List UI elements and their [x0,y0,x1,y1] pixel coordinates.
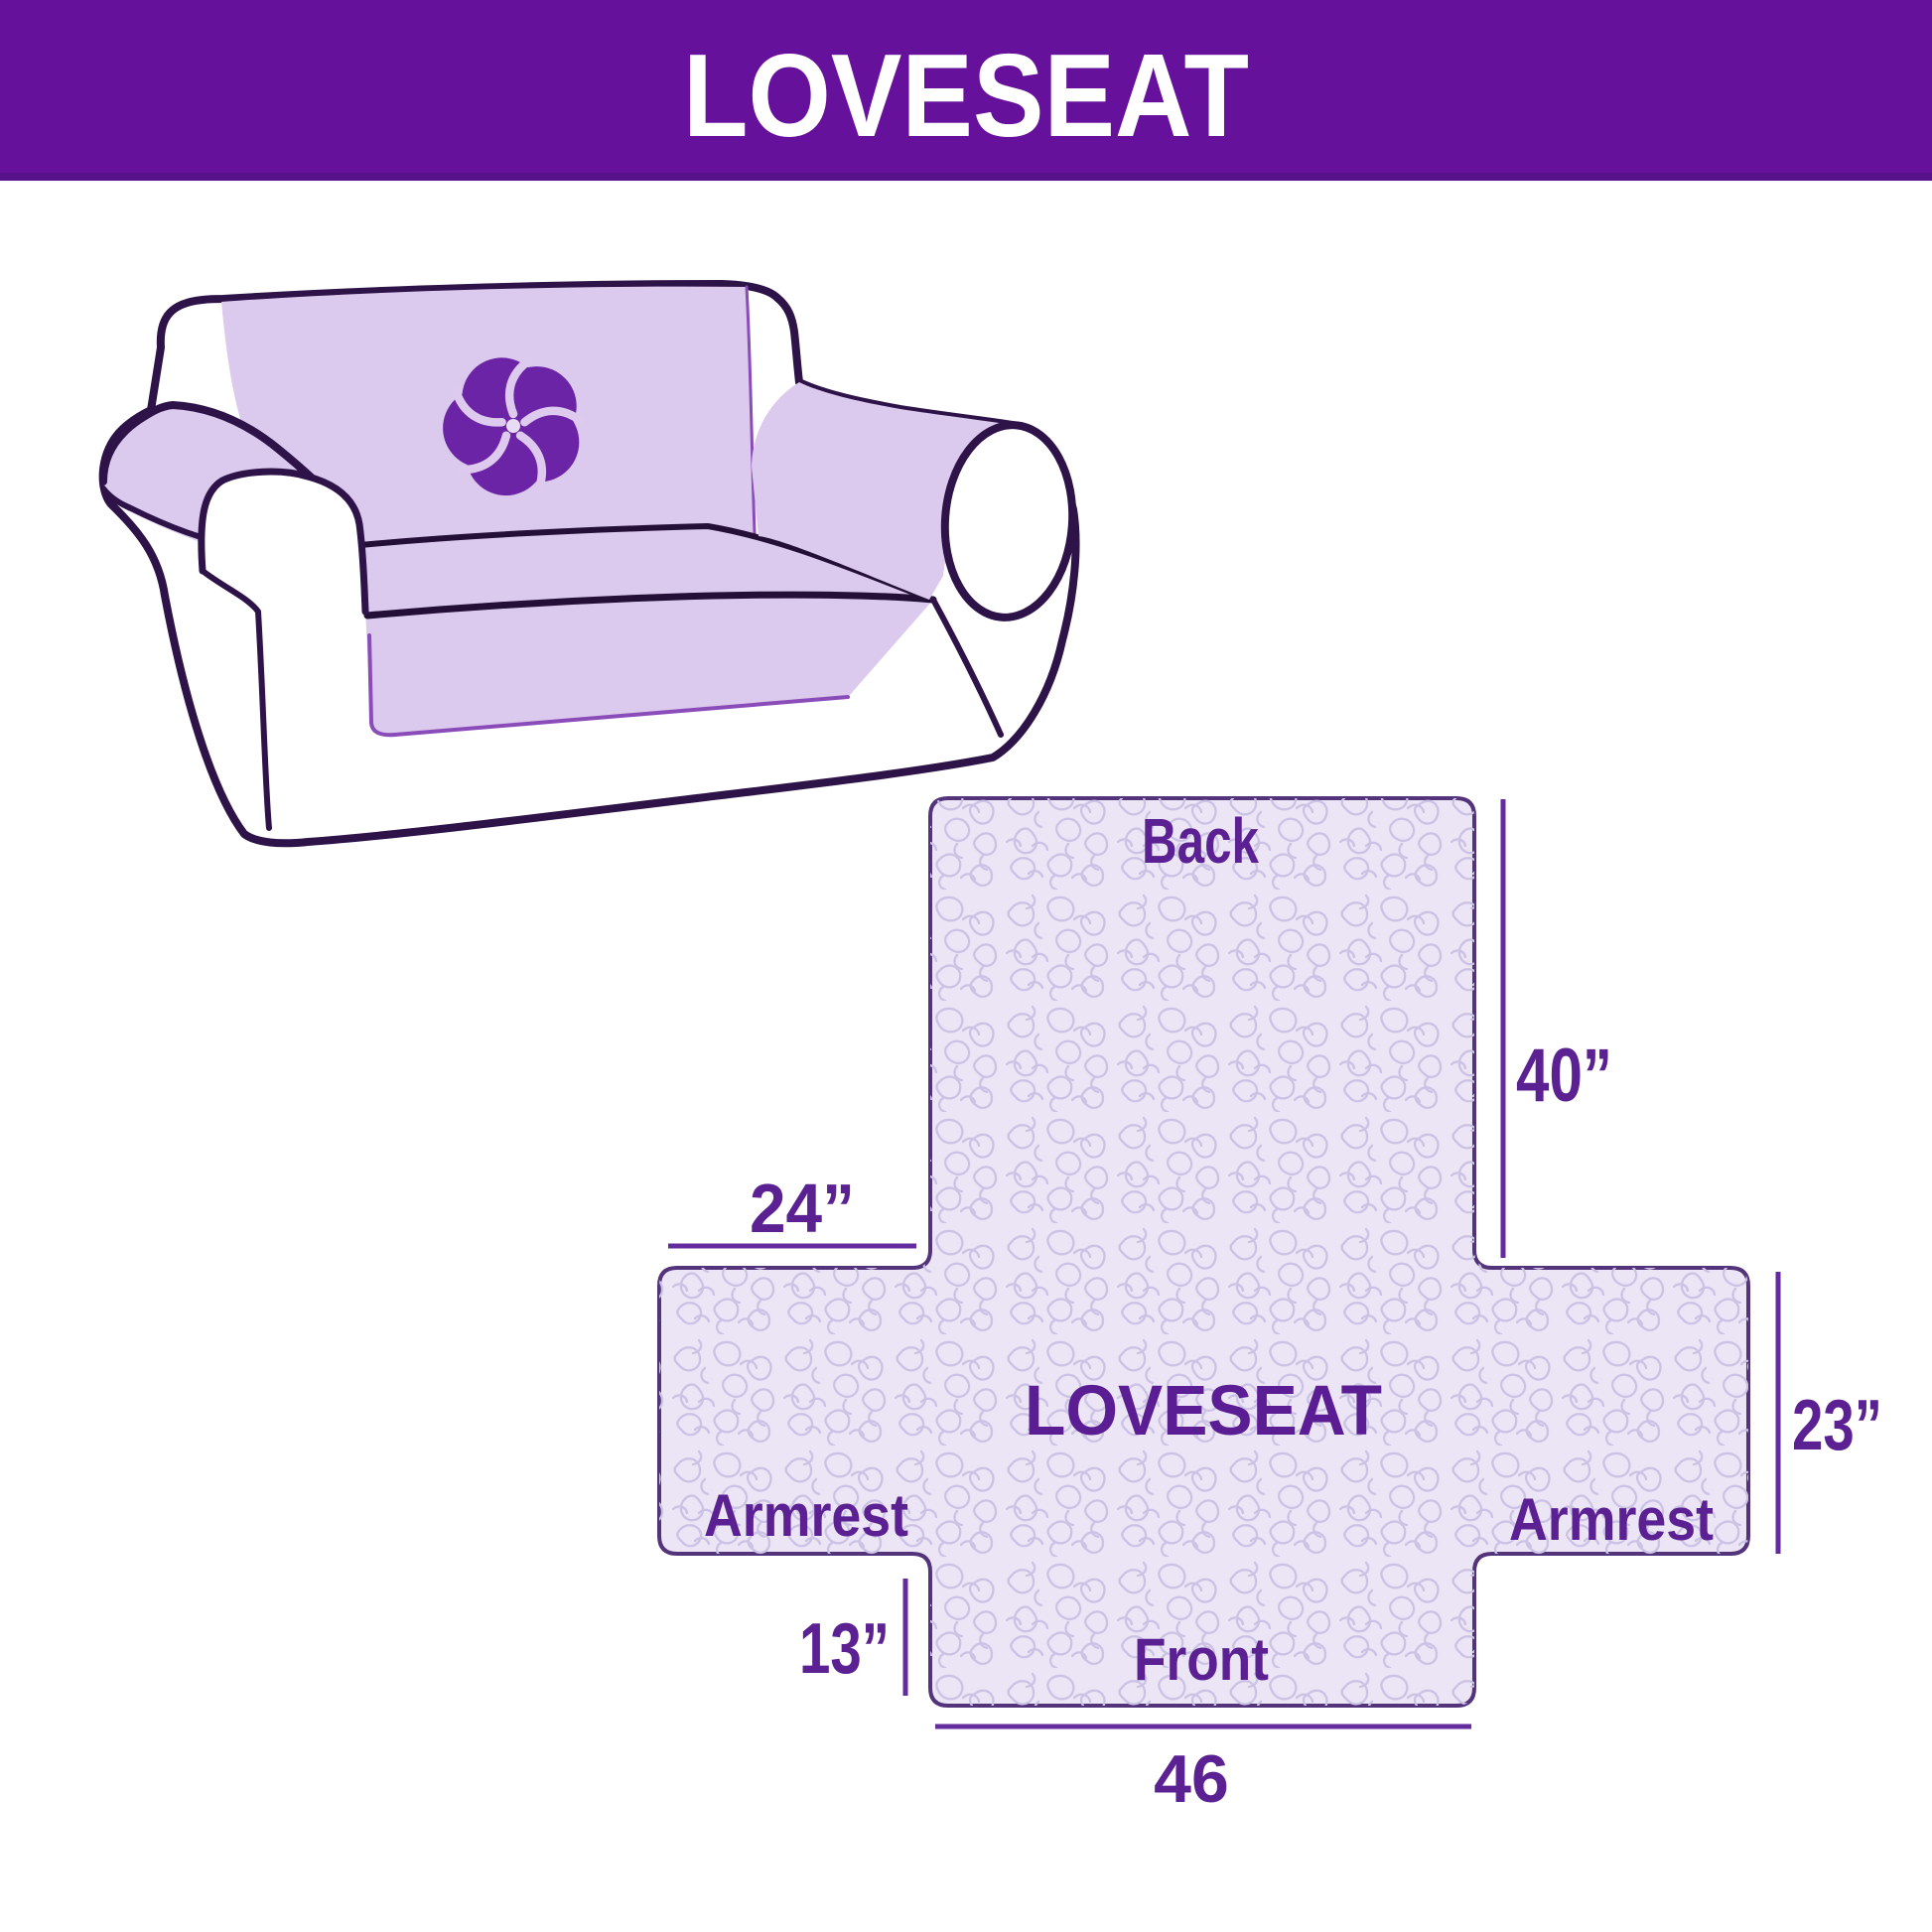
svg-text:46: 46 [1154,1741,1229,1817]
svg-text:Front: Front [1134,1626,1269,1693]
svg-text:Armrest: Armrest [1509,1486,1714,1553]
svg-text:Armrest: Armrest [704,1482,908,1549]
svg-text:23”: 23” [1792,1386,1882,1465]
svg-text:13”: 13” [799,1609,890,1689]
svg-text:Back: Back [1142,805,1259,877]
svg-text:LOVESEAT: LOVESEAT [683,30,1249,162]
svg-text:24”: 24” [750,1170,855,1247]
svg-text:LOVESEAT: LOVESEAT [1025,1372,1382,1450]
svg-text:40”: 40” [1516,1034,1612,1118]
